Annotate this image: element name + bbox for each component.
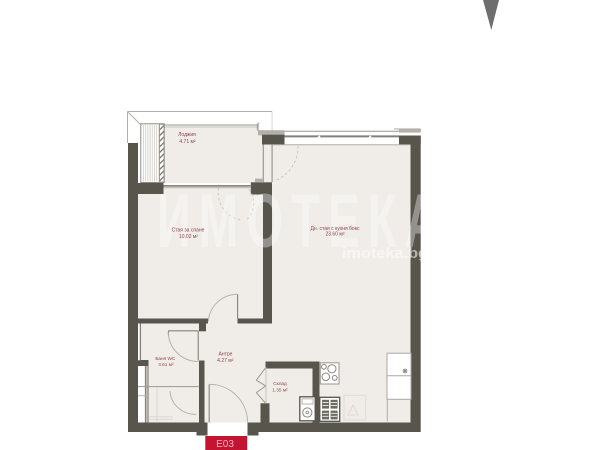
svg-text:4.27 м²: 4.27 м² [217, 358, 234, 364]
svg-text:4.71 м²: 4.71 м² [179, 139, 196, 145]
svg-text:Стая за спане: Стая за спане [172, 228, 205, 234]
svg-text:Баня WC: Баня WC [155, 356, 176, 361]
svg-text:Лоджия: Лоджия [178, 132, 196, 138]
svg-text:3.61 м²: 3.61 м² [158, 362, 174, 367]
svg-text:10.02 м²: 10.02 м² [179, 234, 198, 240]
svg-text:1.35 м²: 1.35 м² [272, 388, 288, 393]
svg-text:23.60 м²: 23.60 м² [325, 232, 344, 238]
svg-text:Антре: Антре [219, 352, 233, 358]
svg-text:E03: E03 [216, 439, 234, 450]
svg-text:Склад: Склад [273, 381, 287, 386]
svg-text:imoteka.bg: imoteka.bg [342, 245, 428, 262]
